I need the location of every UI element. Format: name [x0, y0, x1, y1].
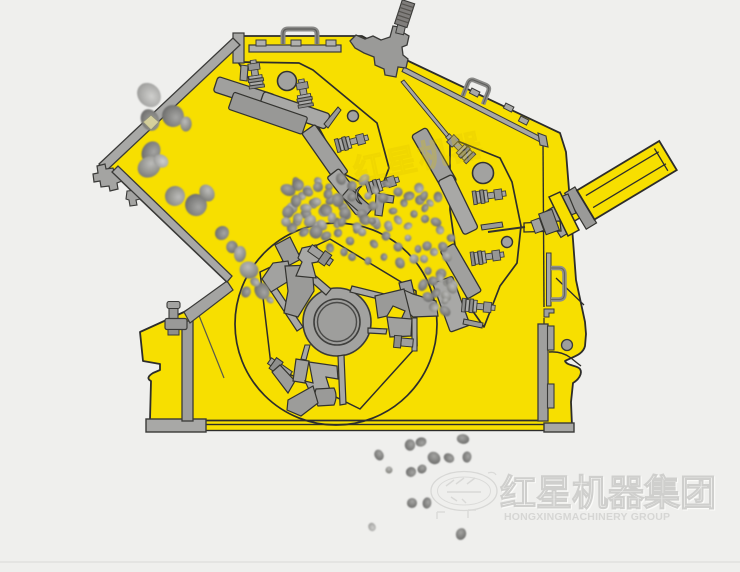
- svg-text:HONGXINGMACHINERY GROUP: HONGXINGMACHINERY GROUP: [504, 511, 670, 523]
- svg-text:红星机器集团: 红星机器集团: [500, 472, 716, 513]
